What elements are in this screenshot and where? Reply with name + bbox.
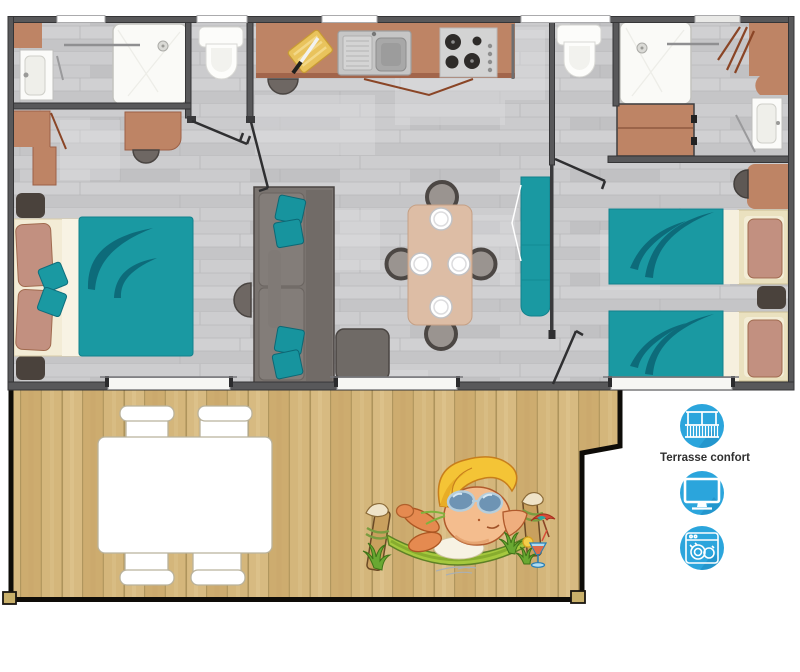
svg-text:Terrasse confort: Terrasse confort xyxy=(660,452,750,464)
